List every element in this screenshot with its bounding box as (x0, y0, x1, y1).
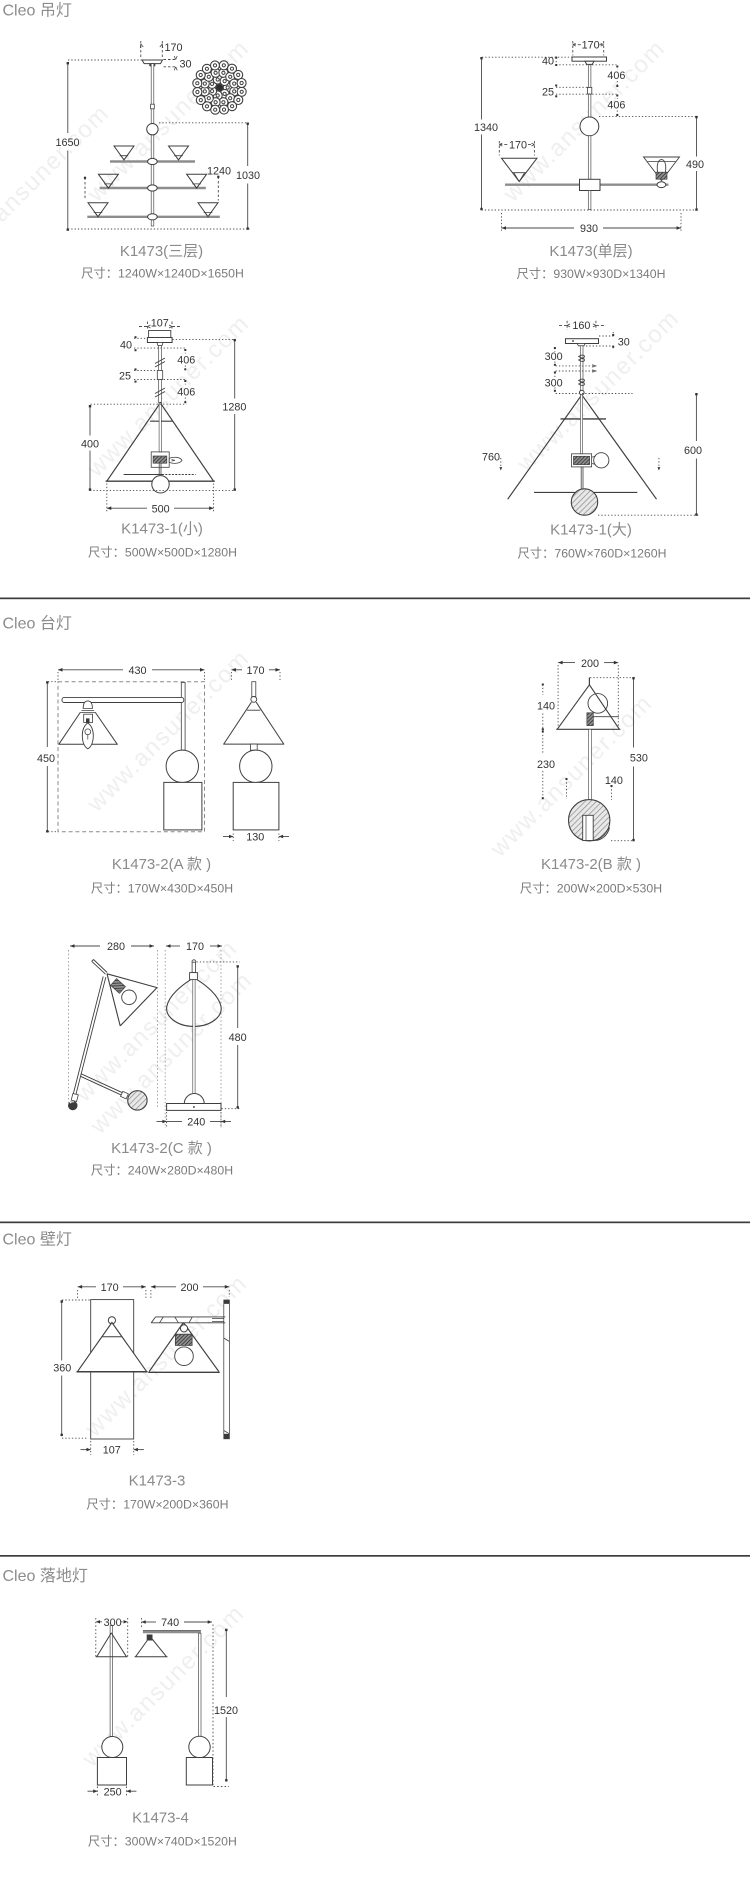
svg-text:406: 406 (177, 387, 195, 399)
svg-text:400: 400 (81, 438, 99, 450)
svg-text:1280: 1280 (222, 401, 246, 413)
svg-text:尺寸：1240W×1240D×1650H: 尺寸：1240W×1240D×1650H (81, 267, 244, 281)
svg-text:www.ansuner.com: www.ansuner.com (81, 310, 254, 483)
svg-text:1030: 1030 (236, 170, 260, 182)
svg-text:107: 107 (151, 317, 169, 329)
svg-text:600: 600 (684, 445, 702, 457)
svg-text:360: 360 (53, 1363, 71, 1375)
svg-text:500: 500 (152, 503, 170, 515)
svg-text:30: 30 (180, 59, 192, 71)
svg-text:40: 40 (120, 339, 132, 351)
svg-text:K1473-3: K1473-3 (129, 1473, 186, 1490)
svg-text:140: 140 (605, 775, 623, 787)
svg-text:170: 170 (101, 1282, 119, 1294)
svg-text:1650: 1650 (55, 137, 79, 149)
svg-text:450: 450 (37, 753, 55, 765)
svg-text:尺寸：240W×280D×480H: 尺寸：240W×280D×480H (91, 1164, 233, 1178)
svg-text:尺寸：300W×740D×1520H: 尺寸：300W×740D×1520H (88, 1835, 237, 1849)
svg-text:240: 240 (187, 1117, 205, 1129)
svg-text:760: 760 (482, 451, 500, 463)
svg-text:K1473(三层): K1473(三层) (120, 243, 203, 260)
svg-text:25: 25 (119, 371, 131, 383)
svg-text:www.ansuner.com: www.ansuner.com (484, 690, 657, 863)
svg-text:30: 30 (618, 336, 630, 348)
svg-text:K1473-2(A 款 ): K1473-2(A 款 ) (112, 856, 211, 873)
svg-text:160: 160 (572, 320, 590, 332)
svg-text:K1473-2(C 款 ): K1473-2(C 款 ) (111, 1140, 212, 1157)
svg-text:Cleo 落地灯: Cleo 落地灯 (3, 1567, 88, 1585)
svg-text:490: 490 (686, 159, 704, 171)
svg-text:尺寸：170W×430D×450H: 尺寸：170W×430D×450H (91, 882, 233, 896)
svg-text:Cleo 壁灯: Cleo 壁灯 (3, 1230, 72, 1249)
svg-text:480: 480 (229, 1032, 247, 1044)
svg-text:107: 107 (103, 1445, 121, 1457)
svg-text:1240: 1240 (207, 165, 231, 177)
svg-text:170: 170 (582, 40, 600, 52)
svg-text:300: 300 (545, 351, 563, 363)
svg-text:Cleo 台灯: Cleo 台灯 (3, 615, 72, 633)
svg-text:406: 406 (177, 354, 195, 366)
svg-text:K1473-2(B 款 ): K1473-2(B 款 ) (541, 856, 641, 873)
svg-text:300: 300 (545, 378, 563, 390)
svg-text:140: 140 (537, 700, 555, 712)
svg-text:K1473(单层): K1473(单层) (549, 243, 632, 260)
svg-text:406: 406 (607, 70, 625, 82)
svg-text:200: 200 (581, 658, 599, 670)
svg-text:尺寸：500W×500D×1280H: 尺寸：500W×500D×1280H (88, 546, 237, 560)
svg-text:280: 280 (107, 941, 125, 953)
svg-text:尺寸：930W×930D×1340H: 尺寸：930W×930D×1340H (516, 267, 665, 281)
svg-text:406: 406 (607, 100, 625, 112)
svg-text:www.ansuner.com: www.ansuner.com (511, 305, 684, 478)
svg-text:250: 250 (104, 1786, 122, 1798)
svg-text:25: 25 (542, 86, 554, 98)
svg-text:130: 130 (246, 832, 264, 844)
svg-text:尺寸：200W×200D×530H: 尺寸：200W×200D×530H (520, 882, 662, 896)
svg-text:430: 430 (128, 665, 146, 677)
svg-text:300: 300 (104, 1617, 122, 1629)
svg-text:K1473-1(大): K1473-1(大) (550, 522, 632, 539)
svg-text:尺寸：760W×760D×1260H: 尺寸：760W×760D×1260H (517, 547, 666, 561)
svg-text:740: 740 (161, 1617, 179, 1629)
svg-text:40: 40 (542, 56, 554, 68)
svg-text:170: 170 (186, 941, 204, 953)
svg-text:Cleo 吊灯: Cleo 吊灯 (3, 2, 72, 20)
svg-text:200: 200 (180, 1282, 198, 1294)
svg-text:1340: 1340 (474, 122, 498, 134)
svg-text:530: 530 (630, 752, 648, 764)
svg-text:170: 170 (246, 665, 264, 677)
svg-text:230: 230 (537, 759, 555, 771)
svg-text:K1473-1(小): K1473-1(小) (121, 521, 203, 538)
svg-text:930: 930 (580, 223, 598, 235)
svg-text:尺寸：170W×200D×360H: 尺寸：170W×200D×360H (86, 1498, 228, 1512)
svg-text:K1473-4: K1473-4 (132, 1810, 189, 1827)
svg-text:170: 170 (165, 42, 183, 54)
svg-text:170: 170 (509, 140, 527, 152)
svg-text:1520: 1520 (214, 1705, 238, 1717)
